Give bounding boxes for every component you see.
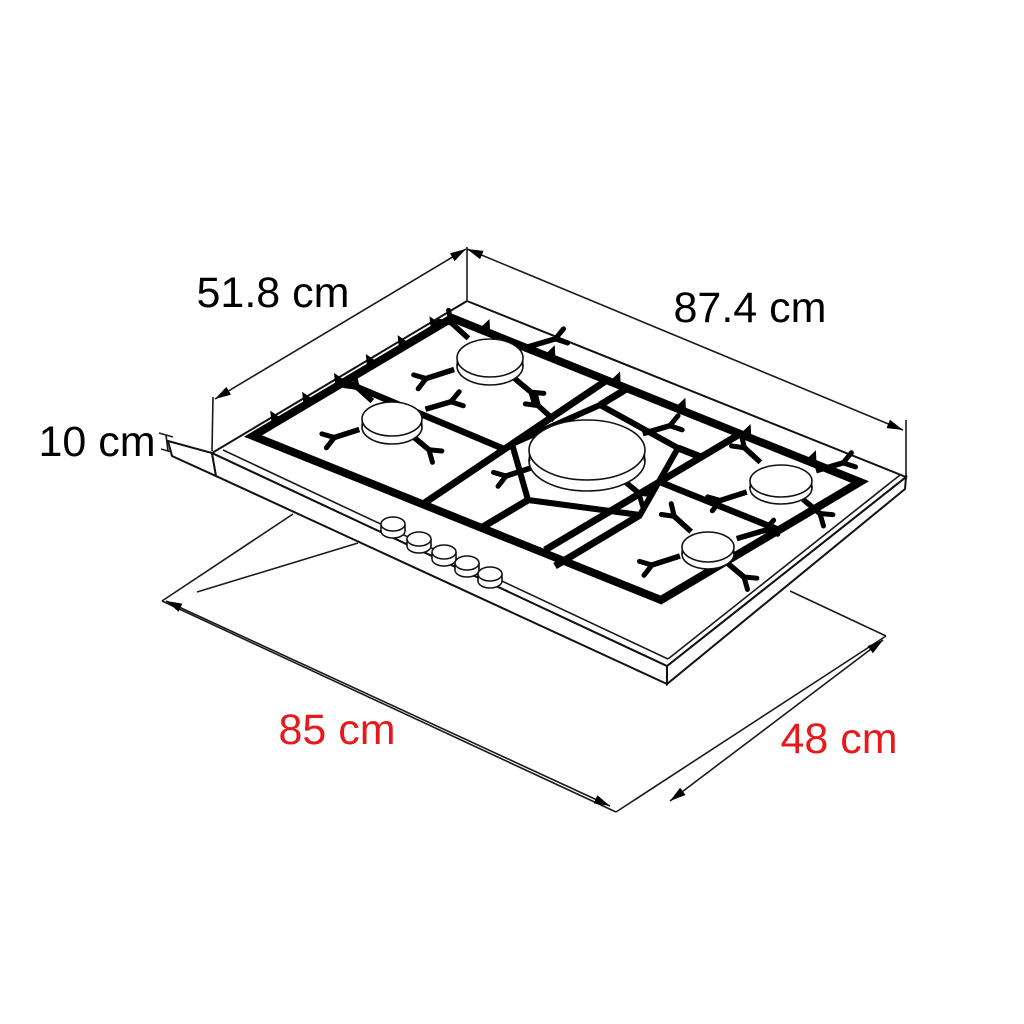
diagram-canvas: 51.8 cm 87.4 cm 10 cm 85 cm 48 cm [0, 0, 1024, 1024]
hob-dimension-diagram: 51.8 cm 87.4 cm 10 cm 85 cm 48 cm [0, 0, 1024, 1024]
dim-label-cutout-width: 85 cm [278, 706, 395, 754]
dim-label-front-height: 10 cm [38, 418, 155, 466]
dim-label-cutout-depth: 48 cm [780, 715, 897, 763]
dim-label-top-width: 87.4 cm [674, 284, 827, 332]
hob-left-strip [168, 441, 216, 476]
dim-label-top-depth: 51.8 cm [197, 269, 350, 317]
